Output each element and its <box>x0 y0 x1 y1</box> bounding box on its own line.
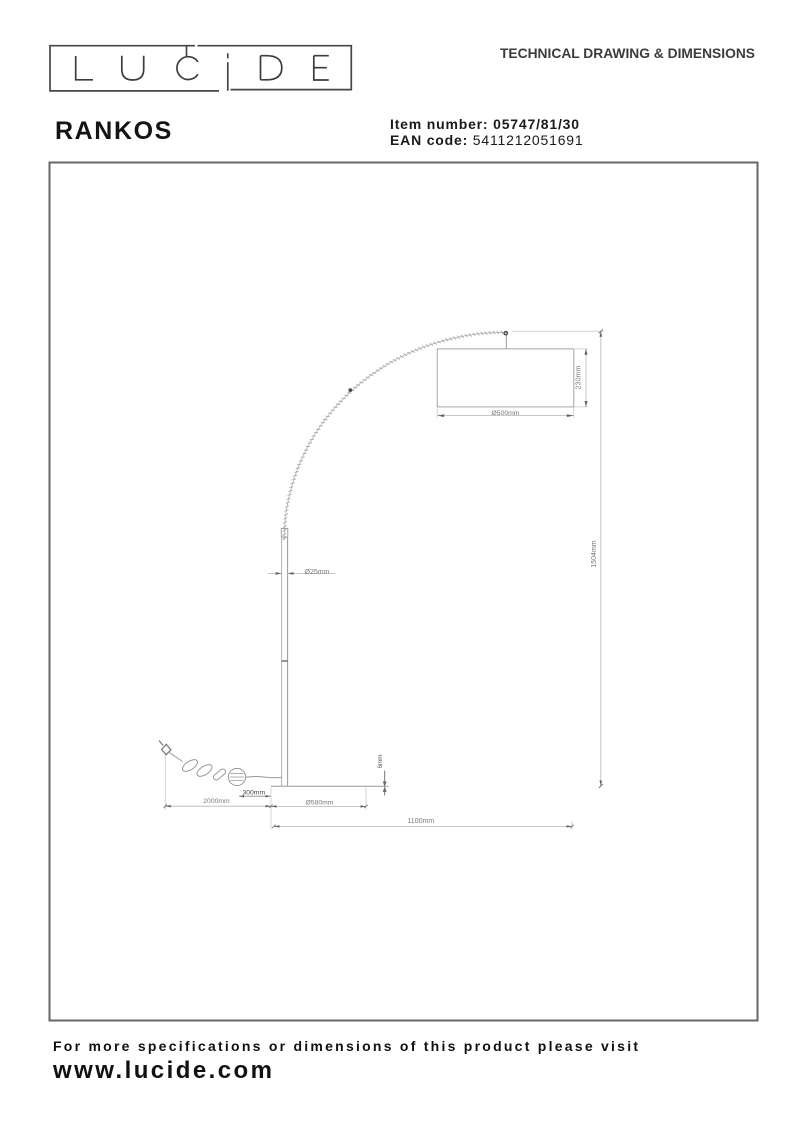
svg-text:6mm: 6mm <box>377 755 384 769</box>
svg-text:Ø25mm: Ø25mm <box>305 569 330 576</box>
svg-text:230mm: 230mm <box>574 366 583 390</box>
svg-text:1100mm: 1100mm <box>407 818 434 825</box>
svg-text:Ø500mm: Ø500mm <box>492 410 520 417</box>
svg-text:1504mm: 1504mm <box>591 540 598 567</box>
svg-text:Ø580mm: Ø580mm <box>306 799 334 806</box>
svg-text:300mm: 300mm <box>242 790 265 797</box>
svg-text:2000mm: 2000mm <box>203 798 230 805</box>
